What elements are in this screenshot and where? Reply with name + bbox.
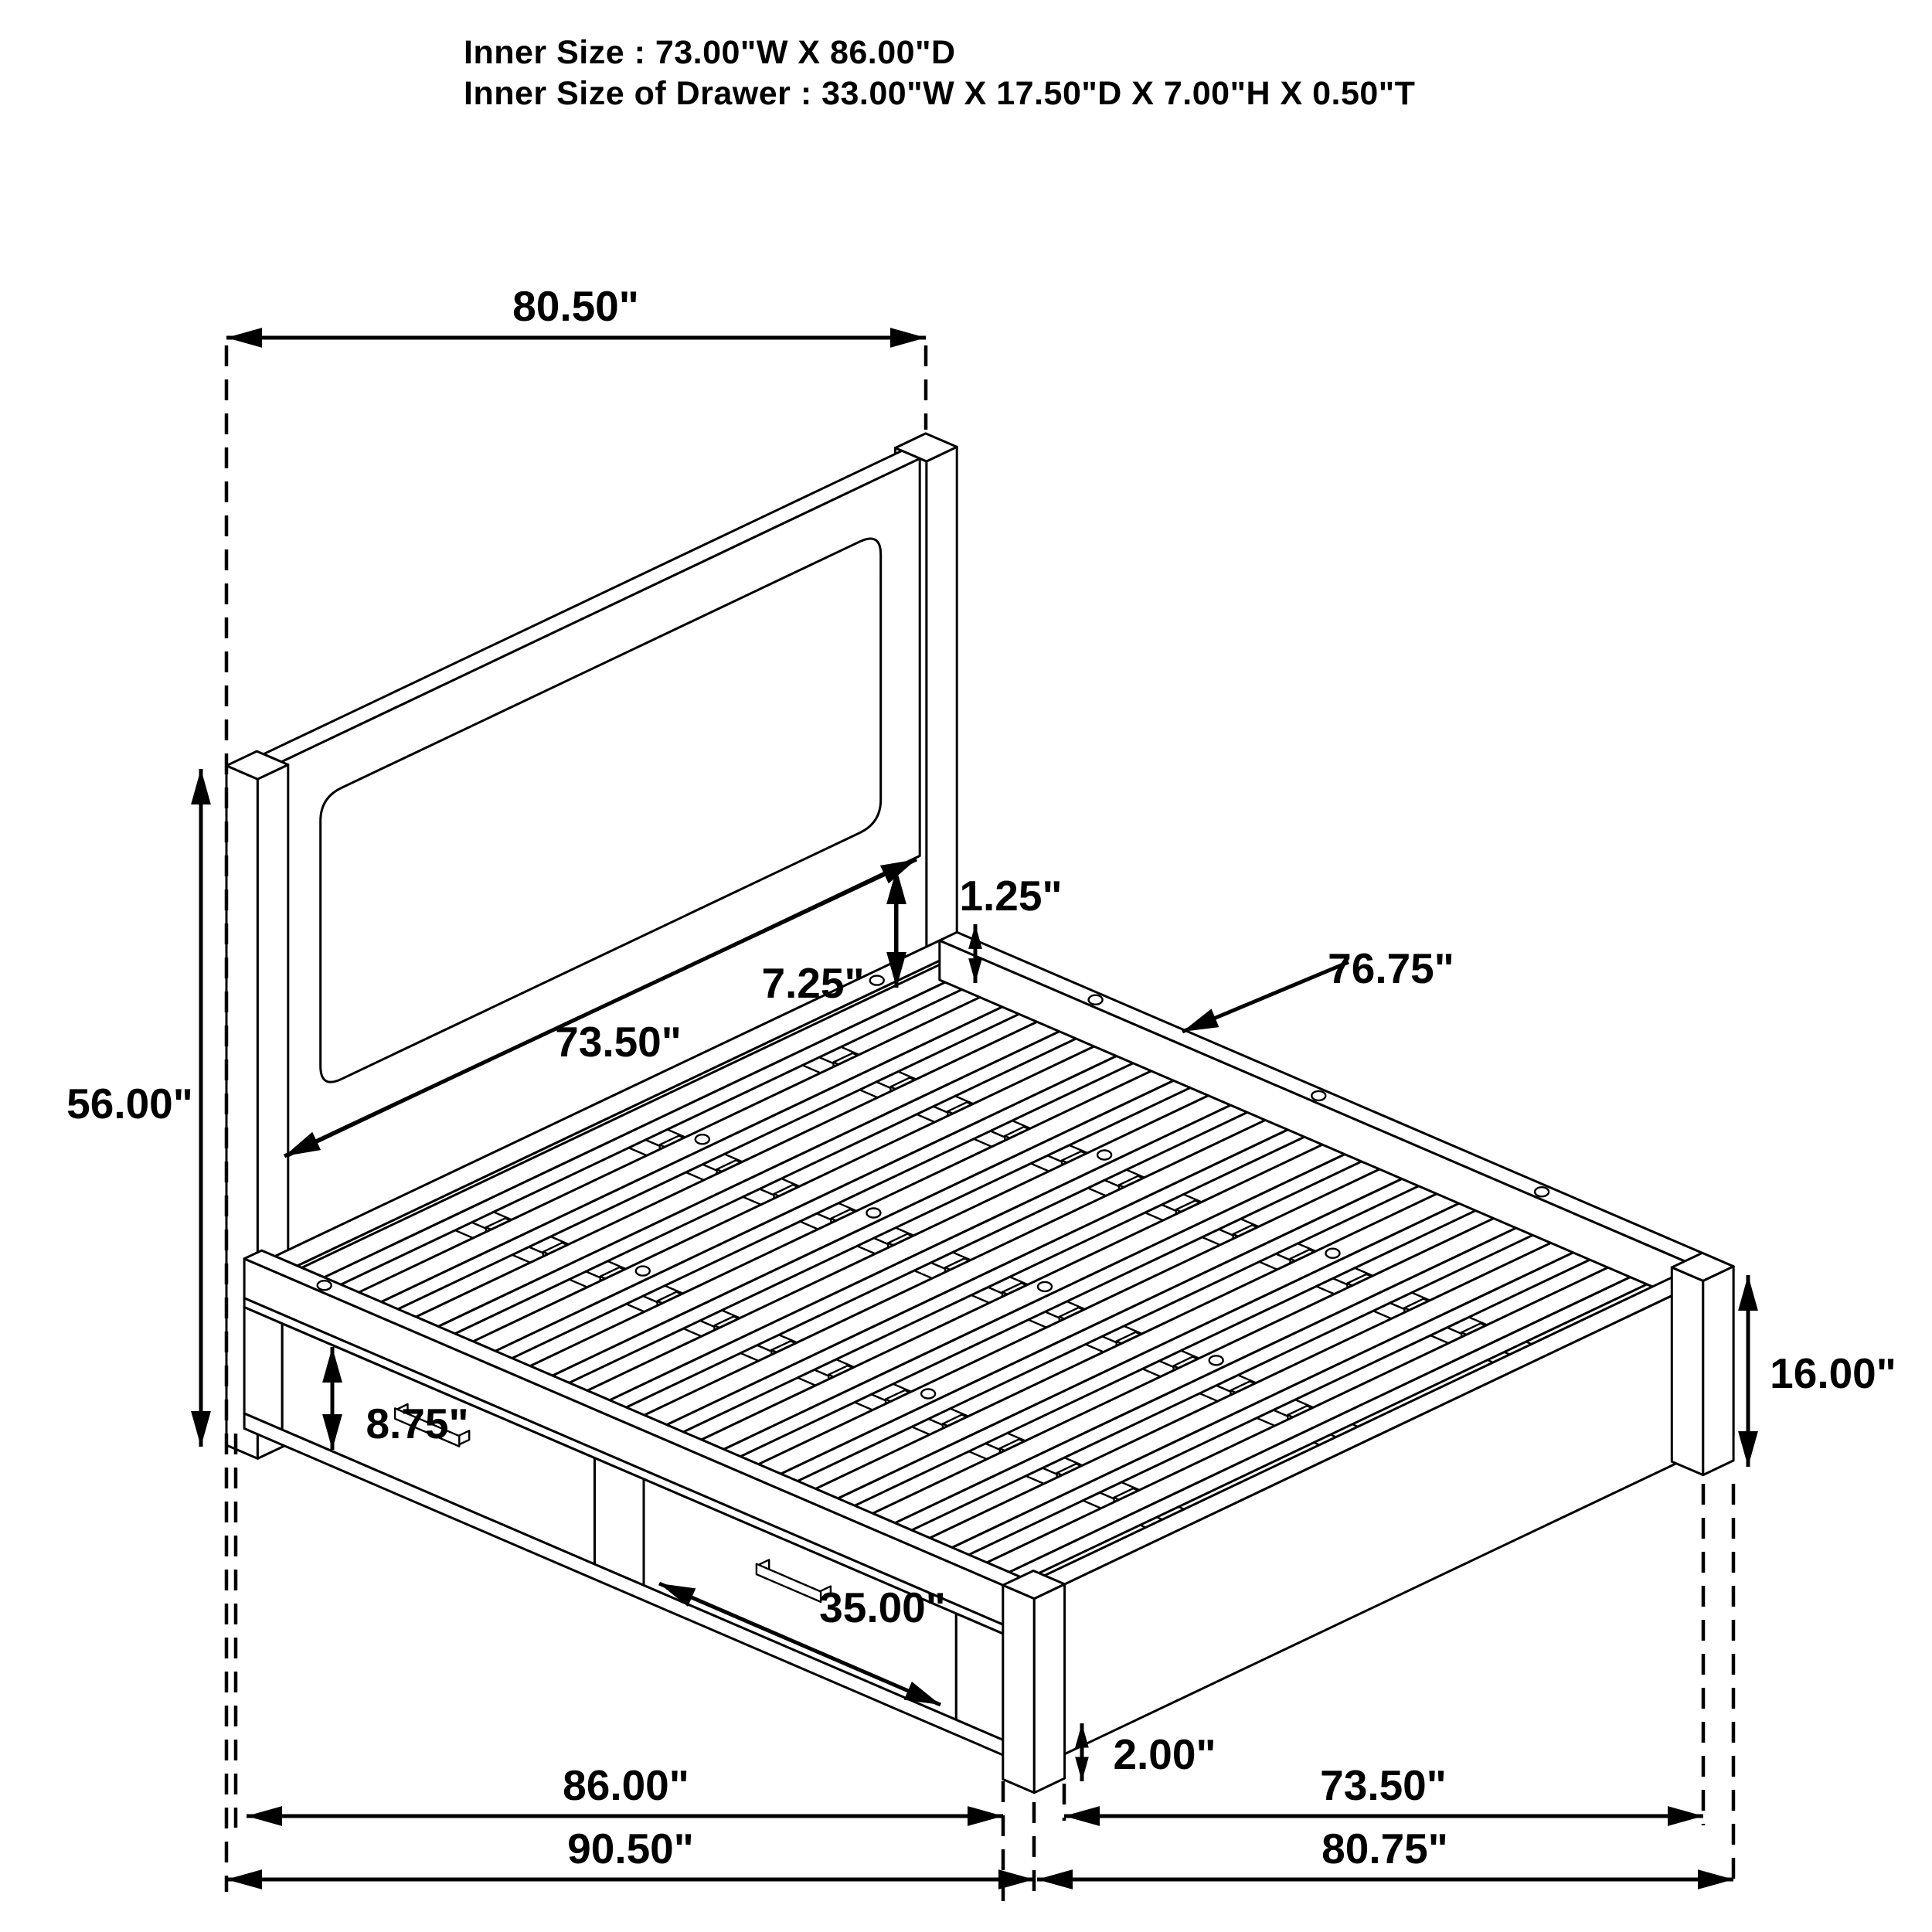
dim-label-side_rail_height: 16.00" (1770, 1349, 1896, 1397)
dim-label-floor_clearance: 2.00" (1113, 1730, 1216, 1778)
dim-label-slat_length: 76.75" (1328, 944, 1454, 992)
arrowhead (1738, 1275, 1758, 1311)
drawer-stile (244, 1308, 282, 1430)
bed-technical-drawing: 80.50"56.00"7.25"1.25"76.75"73.50"8.75"3… (0, 0, 1932, 1932)
dim-label-drawer_front_width: 35.00" (819, 1583, 946, 1631)
dim-label-footboard_inner_width: 73.50" (1320, 1761, 1447, 1809)
arrowhead (191, 1411, 211, 1447)
arrowhead (1064, 1806, 1100, 1826)
arrowhead (247, 1806, 282, 1826)
dim-label-overall_length: 90.50" (567, 1825, 694, 1872)
arrowhead (968, 1806, 1003, 1826)
arrowhead (1738, 1431, 1758, 1467)
screw-hole (1097, 1151, 1111, 1160)
arrowhead (226, 1869, 262, 1889)
arrowhead (890, 328, 926, 348)
arrowhead (1698, 1869, 1733, 1889)
screw-hole (1038, 1282, 1052, 1291)
arrowhead (1182, 1009, 1219, 1032)
foot-right-leg (1703, 1267, 1733, 1475)
dim-label-headboard_panel_gap: 7.25" (761, 959, 864, 1007)
screw-hole (1535, 1187, 1549, 1196)
screw-hole (1209, 1355, 1223, 1365)
dim-label-slat_thickness: 1.25" (959, 872, 1062, 920)
headboard-right-post (927, 447, 957, 989)
arrowhead (226, 328, 262, 348)
screw-hole (921, 1389, 935, 1399)
diagram-page: 80.50"56.00"7.25"1.25"76.75"73.50"8.75"3… (0, 0, 1932, 1932)
dim-label-headboard_height: 56.00" (66, 1080, 193, 1128)
screw-hole (1326, 1249, 1340, 1258)
arrowhead (191, 769, 211, 804)
foot-right-leg (1672, 1267, 1703, 1475)
dim-label-footboard_outer_width: 80.75" (1321, 1825, 1448, 1872)
dim-label-platform_length: 86.00" (563, 1761, 689, 1809)
drawer-inner-size-note: Inner Size of Drawer : 33.00"W X 17.50"D… (464, 73, 1415, 114)
foot-near-post (1003, 1585, 1035, 1793)
screw-hole (696, 1134, 709, 1144)
arrowhead (968, 924, 982, 949)
screw-hole (1311, 1091, 1325, 1100)
bed-drawing (226, 434, 1733, 1793)
inner-size-note: Inner Size : 73.00"W X 86.00"D (464, 32, 1415, 73)
dim-label-headboard_inner_width: 73.50" (555, 1018, 682, 1066)
header-notes: Inner Size : 73.00"W X 86.00"D Inner Siz… (464, 32, 1415, 114)
arrowhead (1075, 1757, 1089, 1782)
foot-near-post (1034, 1584, 1064, 1793)
screw-hole (870, 976, 884, 985)
arrowhead (1037, 1869, 1073, 1889)
screw-hole (866, 1209, 880, 1218)
dim-label-overall_width_top: 80.50" (512, 282, 639, 330)
screw-hole (318, 1281, 332, 1290)
arrowhead (1668, 1806, 1703, 1826)
screw-hole (636, 1267, 650, 1276)
screw-hole (1089, 995, 1103, 1005)
dim-label-drawer_front_height: 8.75" (366, 1400, 468, 1447)
drawer-stile (594, 1458, 644, 1586)
